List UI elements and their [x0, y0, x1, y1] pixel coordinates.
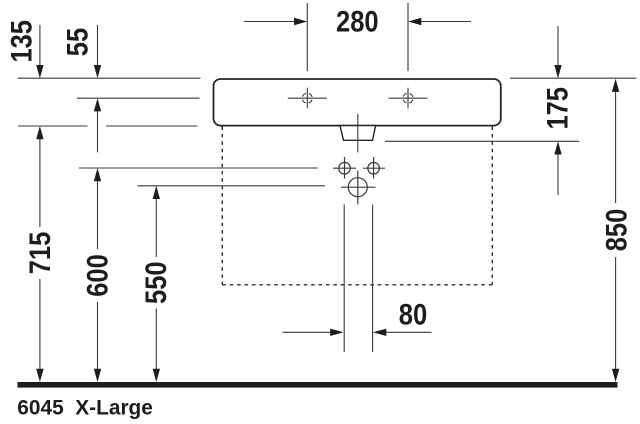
- svg-text:850: 850: [600, 209, 633, 252]
- svg-text:175: 175: [542, 87, 575, 130]
- svg-text:80: 80: [399, 299, 427, 332]
- svg-text:550: 550: [140, 261, 173, 304]
- svg-text:600: 600: [82, 254, 115, 297]
- svg-text:135: 135: [5, 20, 38, 63]
- svg-text:715: 715: [24, 232, 57, 275]
- svg-text:55: 55: [62, 28, 95, 56]
- svg-text:6045 X-Large: 6045 X-Large: [17, 396, 153, 420]
- svg-text:280: 280: [336, 6, 379, 39]
